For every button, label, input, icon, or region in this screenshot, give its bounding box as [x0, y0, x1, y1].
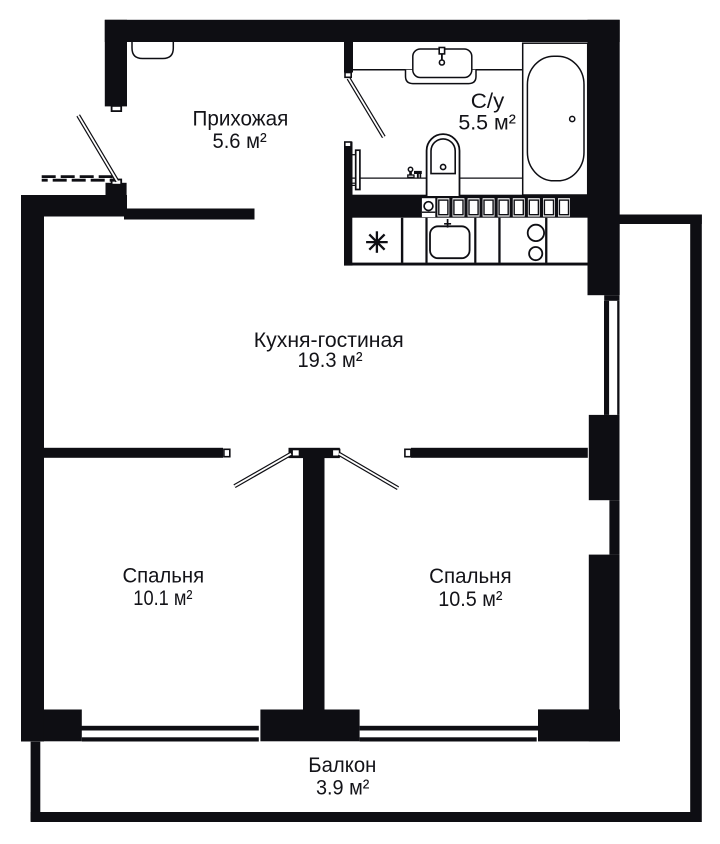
svg-text:С/у: С/у: [471, 90, 505, 113]
svg-text:3.9 м²: 3.9 м²: [316, 777, 369, 800]
svg-text:10.5 м²: 10.5 м²: [438, 588, 502, 611]
svg-text:5.6 м²: 5.6 м²: [213, 130, 267, 153]
svg-text:Балкон: Балкон: [308, 754, 376, 777]
svg-text:19.3 м²: 19.3 м²: [298, 349, 363, 372]
svg-text:10.1 м²: 10.1 м²: [133, 587, 192, 610]
svg-text:Спальня: Спальня: [122, 565, 204, 588]
svg-text:Прихожая: Прихожая: [193, 107, 289, 130]
svg-text:5.5 м²: 5.5 м²: [458, 111, 516, 134]
svg-text:Спальня: Спальня: [429, 565, 512, 588]
